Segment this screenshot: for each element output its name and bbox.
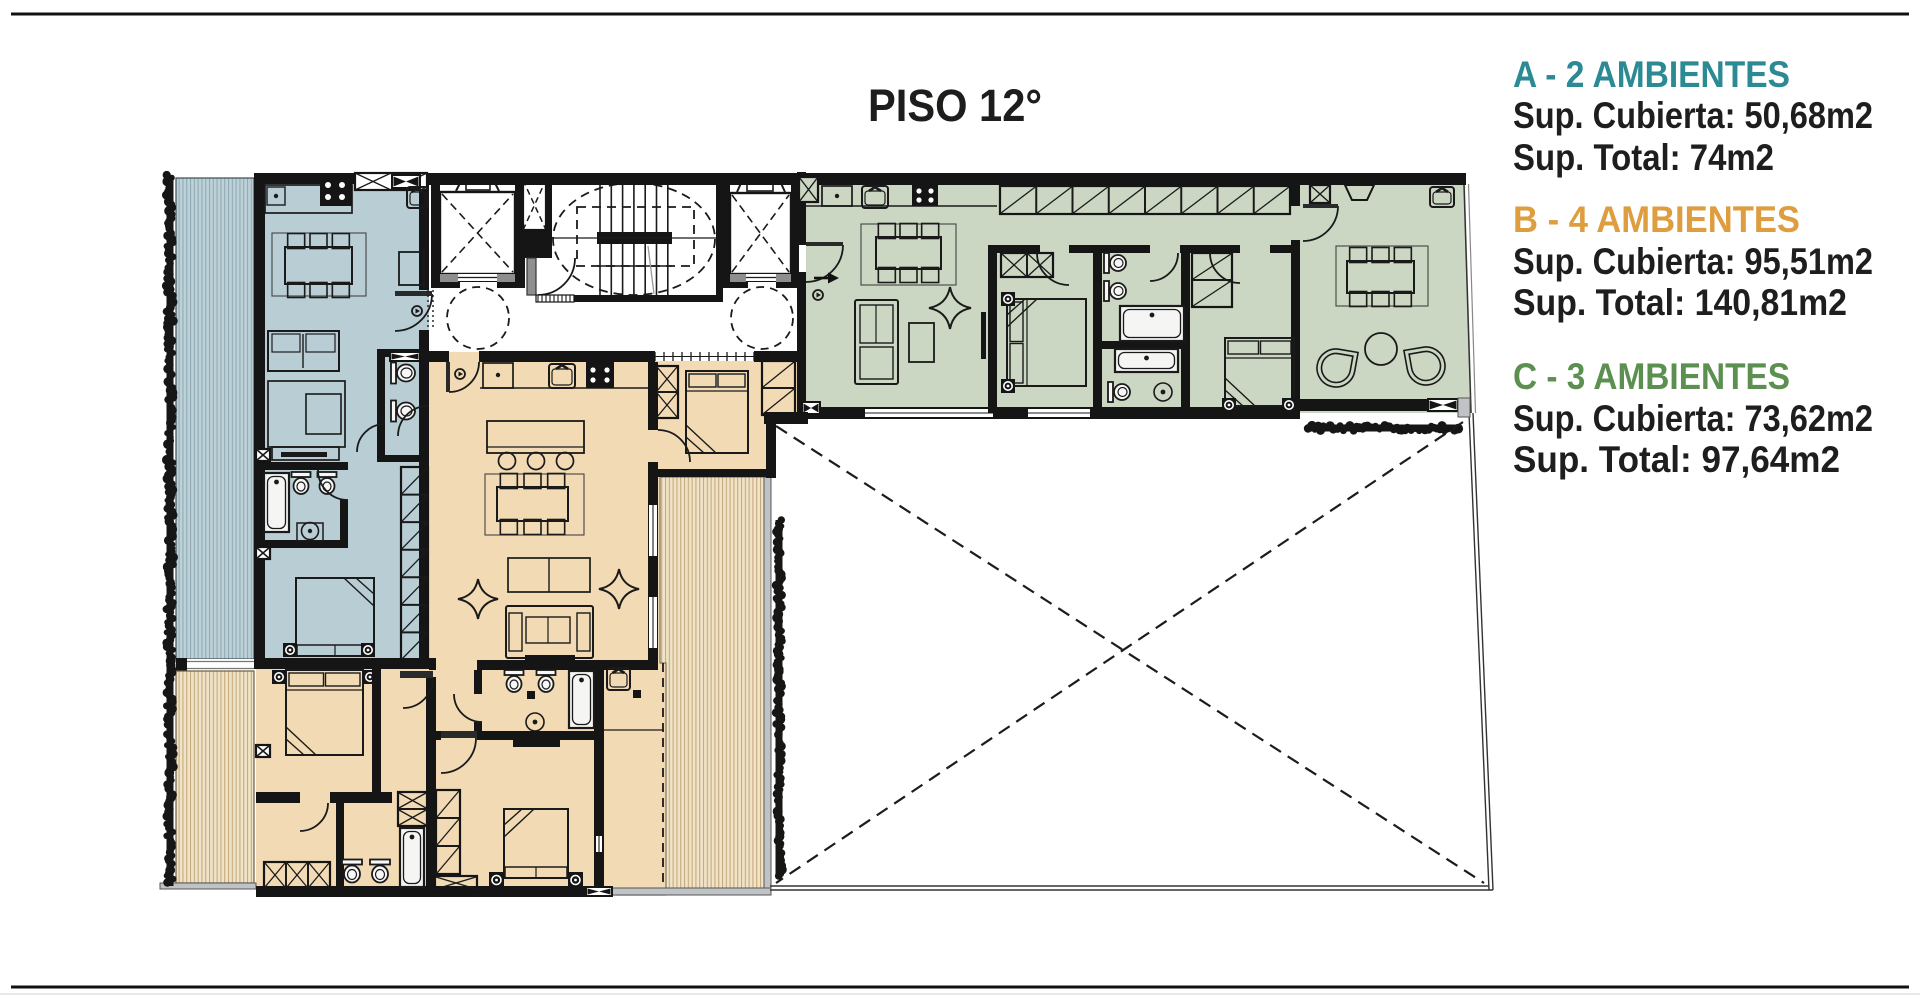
svg-text:Sup. Total: 97,64m2: Sup. Total: 97,64m2 xyxy=(1513,439,1840,480)
svg-text:B - 4 AMBIENTES: B - 4 AMBIENTES xyxy=(1513,199,1800,240)
svg-text:Sup. Cubierta: 73,62m2: Sup. Cubierta: 73,62m2 xyxy=(1513,398,1873,439)
svg-text:PISO 12°: PISO 12° xyxy=(868,80,1042,131)
svg-text:Sup. Cubierta: 95,51m2: Sup. Cubierta: 95,51m2 xyxy=(1513,241,1873,282)
svg-text:Sup. Cubierta: 50,68m2: Sup. Cubierta: 50,68m2 xyxy=(1513,95,1873,136)
svg-text:A - 2 AMBIENTES: A - 2 AMBIENTES xyxy=(1513,54,1790,95)
svg-text:Sup. Total: 74m2: Sup. Total: 74m2 xyxy=(1513,137,1774,178)
svg-text:C - 3 AMBIENTES: C - 3 AMBIENTES xyxy=(1513,356,1790,397)
svg-text:Sup. Total: 140,81m2: Sup. Total: 140,81m2 xyxy=(1513,282,1847,323)
